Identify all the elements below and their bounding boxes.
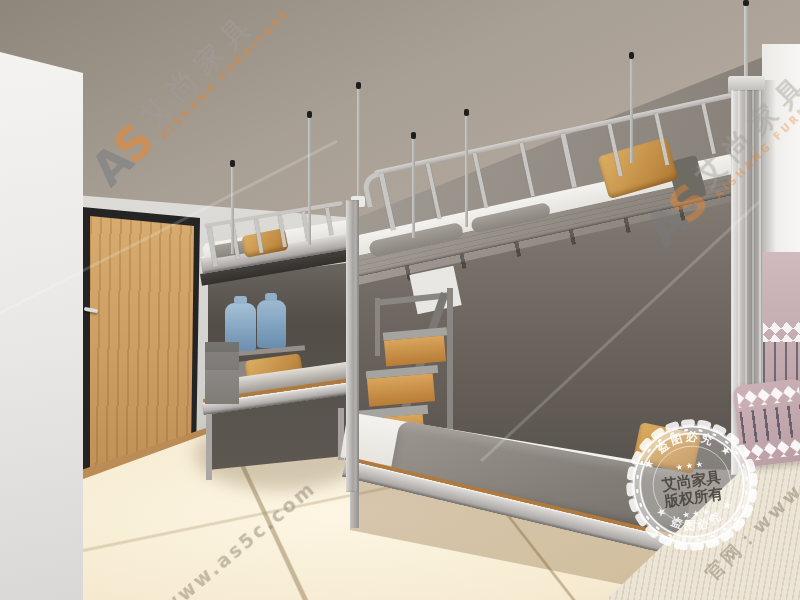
dormitory-render: AS 艾尚家具 AISHANG FURNITURE AS 艾尚家具 AISHAN…	[0, 0, 800, 600]
stair-riser-wood	[367, 373, 435, 407]
ceiling-rod	[744, 0, 748, 80]
net-pole	[308, 117, 311, 245]
net-pole	[357, 88, 360, 200]
net-pole	[231, 166, 234, 254]
far-stair-end	[205, 342, 239, 404]
stair-riser-wood	[384, 335, 446, 366]
foreground-wall	[0, 0, 83, 600]
net-pole	[630, 58, 633, 163]
mauve-pillow	[732, 378, 800, 468]
water-jug	[257, 300, 286, 348]
net-pole	[412, 138, 415, 238]
bed-post-left	[346, 200, 359, 492]
bed-leg	[206, 414, 212, 480]
net-pole	[465, 115, 468, 227]
